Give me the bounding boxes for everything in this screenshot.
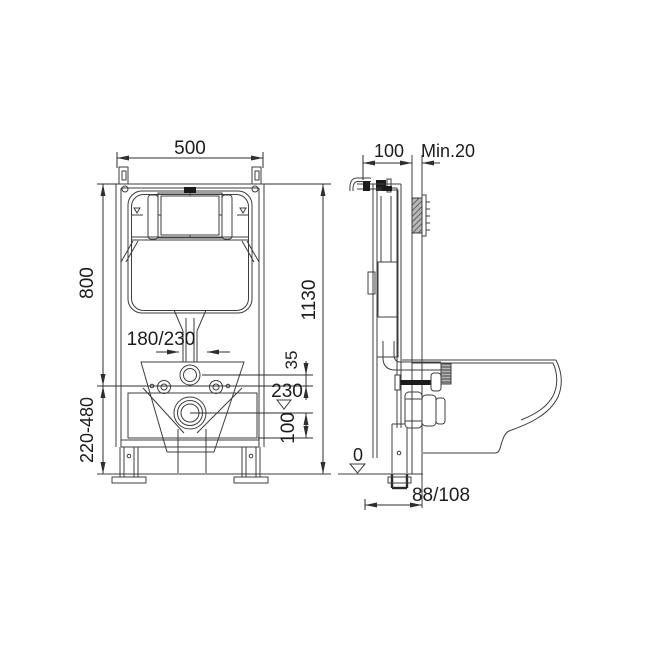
dim-leg-adjust-range: 220-480 [77,397,97,463]
inspection-window [158,193,222,238]
level-marker-icon [350,464,365,473]
push-rod-port [184,187,196,193]
dim-wall-min: Min.20 [421,141,475,161]
wc-bolt-hole [158,381,171,394]
frame-screw-hole [252,186,258,192]
insulation-board [128,393,257,438]
hanger-tab [119,167,128,184]
wc-connections [395,363,451,428]
drain-pipe-side [388,424,411,488]
dim-frame-height: 800 [77,267,98,299]
dim-outlet-drop: 100 [278,412,299,444]
hanger-tab [252,167,261,184]
dim-outlet-offset: 88/108 [412,485,470,506]
level-marker-icon [277,400,291,409]
water-level-marker-icon [134,208,140,213]
front-view: 500 800 220-480 1130 180/230 35 230 100 [77,138,331,483]
technical-drawing-canvas: 500 800 220-480 1130 180/230 35 230 100 [0,0,650,650]
wall-section [412,155,430,508]
cistern-side [368,186,441,370]
dim-frame-depth: 100 [374,141,404,161]
cistern-front [121,187,259,313]
dim-flush-to-axis: 35 [282,351,301,370]
wc-bolt-hole [210,381,223,394]
dim-floor-level: 0 [353,445,363,465]
side-view: 100 Min.20 0 88/108 [338,141,561,510]
water-level-marker-icon [240,208,246,213]
flush-plate-recess [412,198,422,233]
dim-bolt-spacing: 180/230 [127,329,196,350]
side-dimensions: 100 Min.20 0 88/108 [350,141,475,510]
bolt-cap [431,373,441,391]
foot-base-plate [234,477,268,483]
toilet-bowl [402,360,561,453]
dim-outlet-level: 230 [271,381,303,402]
bracket-nut [363,181,370,191]
dim-overall-height: 1130 [299,280,320,321]
foot-base-plate [112,477,146,483]
drain-connector [405,392,422,428]
frame-screw-hole [122,186,128,192]
dim-frame-width: 500 [174,138,206,159]
installation-diagram: 500 800 220-480 1130 180/230 35 230 100 [0,0,650,650]
inlet-spud [441,363,451,384]
